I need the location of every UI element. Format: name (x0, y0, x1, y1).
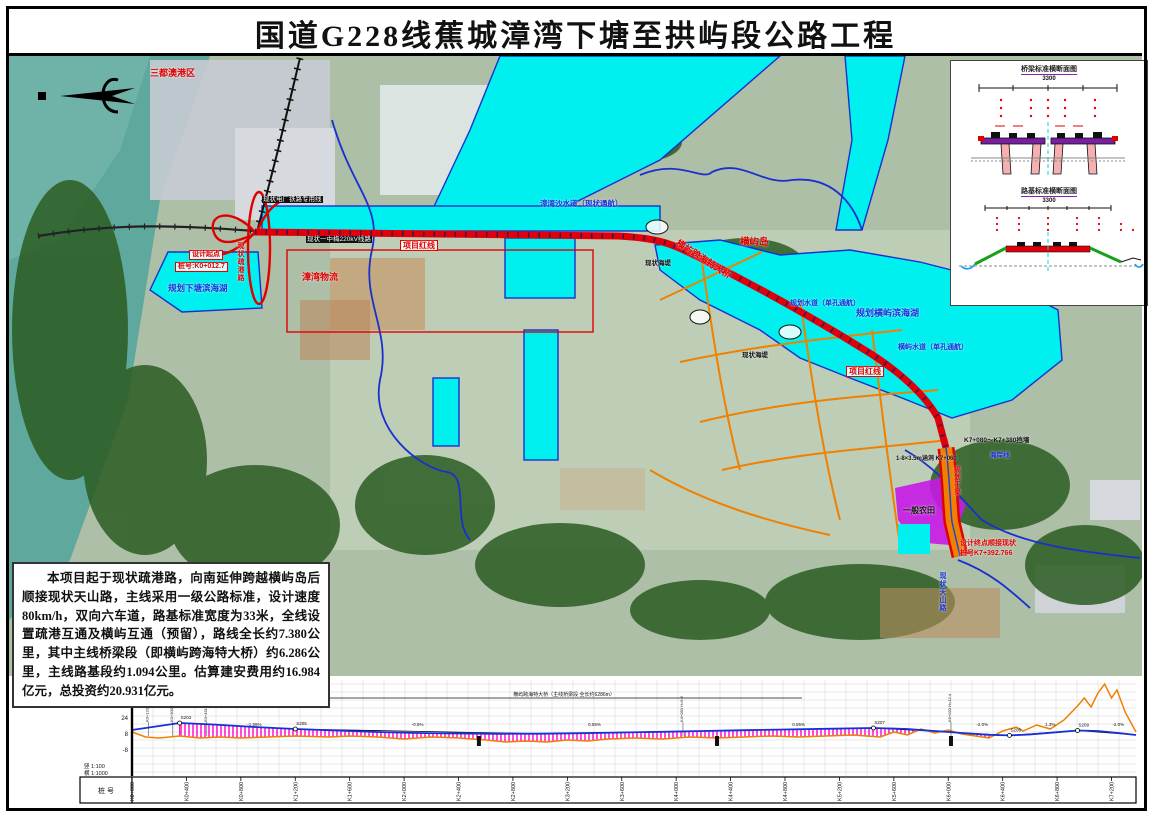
project-description-text: 本项目起于现状疏港路，向南延伸跨越横屿岛后顺接现状天山路，主线采用一级公路标准，… (22, 569, 320, 700)
svg-text:K6+800: K6+800 (1055, 782, 1061, 801)
svg-text:K2+800: K2+800 (511, 782, 517, 801)
svg-text:K2+000: K2+000 (402, 782, 408, 801)
svg-text:1.3%: 1.3% (1045, 722, 1055, 727)
svg-text:K0+800: K0+800 (239, 782, 245, 801)
svg-text:K4+800: K4+800 (783, 782, 789, 801)
scale-horizontal: 横 1:1000 (84, 769, 108, 777)
roadbed-section-diagram (951, 204, 1145, 278)
station-row-label: 桩 号 (98, 786, 114, 795)
bridge-section-title: 桥梁标准横断面图 (1021, 64, 1077, 75)
title-bar: 国道G228线蕉城漳湾下塘至拱屿段公路工程 (9, 9, 1142, 56)
red-annotation-dots (1000, 99, 1096, 117)
svg-text:-1.55%: -1.55% (247, 722, 261, 727)
svg-text:-2.0%: -2.0% (976, 722, 988, 727)
bridge-span-label: 横屿跨海特大桥（主线桥梁段 全长约6286m） (513, 691, 615, 698)
svg-text:K0+400: K0+400 (184, 782, 190, 801)
svg-text:K4+400: K4+400 (729, 782, 735, 801)
station-row-box (132, 777, 1136, 803)
village-blocks2 (1090, 480, 1140, 520)
bridge-section-diagram (951, 82, 1145, 178)
ytick: -8 (123, 748, 129, 754)
page-title: 国道G228线蕉城漳湾下塘至拱屿段公路工程 (9, 11, 1142, 55)
ytick: 24 (121, 716, 128, 722)
drawing-sheet: 三都澳港区 现状电厂铁路专用线 现状一中梅220kV线路 现状疏港路 设计起点 … (0, 0, 1151, 813)
profile-scales: 竖 1:100 横 1:1000 (84, 762, 108, 777)
svg-text:K3+200: K3+200 (565, 782, 571, 801)
cross-section-inset: 桥梁标准横断面图 3300 (950, 60, 1148, 306)
roadbed-section-title: 路基标准横断面图 (1021, 186, 1077, 197)
svg-text:0.55%: 0.55% (588, 722, 601, 727)
svg-text:K6+400: K6+400 (1001, 782, 1007, 801)
svg-text:S203: S203 (181, 715, 192, 720)
svg-text:K4+050 H=9.6: K4+050 H=9.6 (679, 695, 684, 722)
svg-text:S208: S208 (1010, 727, 1021, 732)
svg-text:S207: S207 (874, 720, 885, 725)
piers (1001, 144, 1097, 174)
svg-text:0.55%: 0.55% (792, 722, 805, 727)
svg-text:K1+600: K1+600 (348, 782, 354, 801)
svg-text:K2+400: K2+400 (457, 782, 463, 801)
svg-text:K0+000: K0+000 (130, 782, 136, 801)
farm-pond (898, 524, 930, 554)
svg-text:-2.0%: -2.0% (1112, 722, 1124, 727)
svg-text:S205: S205 (296, 721, 307, 726)
svg-text:K6+020 H=12.4: K6+020 H=12.4 (947, 693, 952, 722)
red-annotation-dots2 (996, 217, 1134, 231)
ytick: 8 (125, 732, 129, 738)
svg-text:K6+000: K6+000 (946, 782, 952, 801)
svg-text:K5+200: K5+200 (837, 782, 843, 801)
svg-text:K1+200: K1+200 (293, 782, 299, 801)
svg-text:K7+200: K7+200 (1110, 782, 1116, 801)
svg-text:K5+600: K5+600 (892, 782, 898, 801)
svg-text:S209: S209 (1079, 723, 1090, 728)
embankment (959, 242, 1143, 269)
svg-text:K3+600: K3+600 (620, 782, 626, 801)
project-description-box: 本项目起于现状疏港路，向南延伸跨越横屿岛后顺接现状天山路，主线采用一级公路标准，… (12, 562, 330, 708)
scale-vertical: 竖 1:100 (84, 762, 105, 770)
svg-text:-0.5%: -0.5% (412, 722, 424, 727)
svg-text:K4+000: K4+000 (674, 782, 680, 801)
